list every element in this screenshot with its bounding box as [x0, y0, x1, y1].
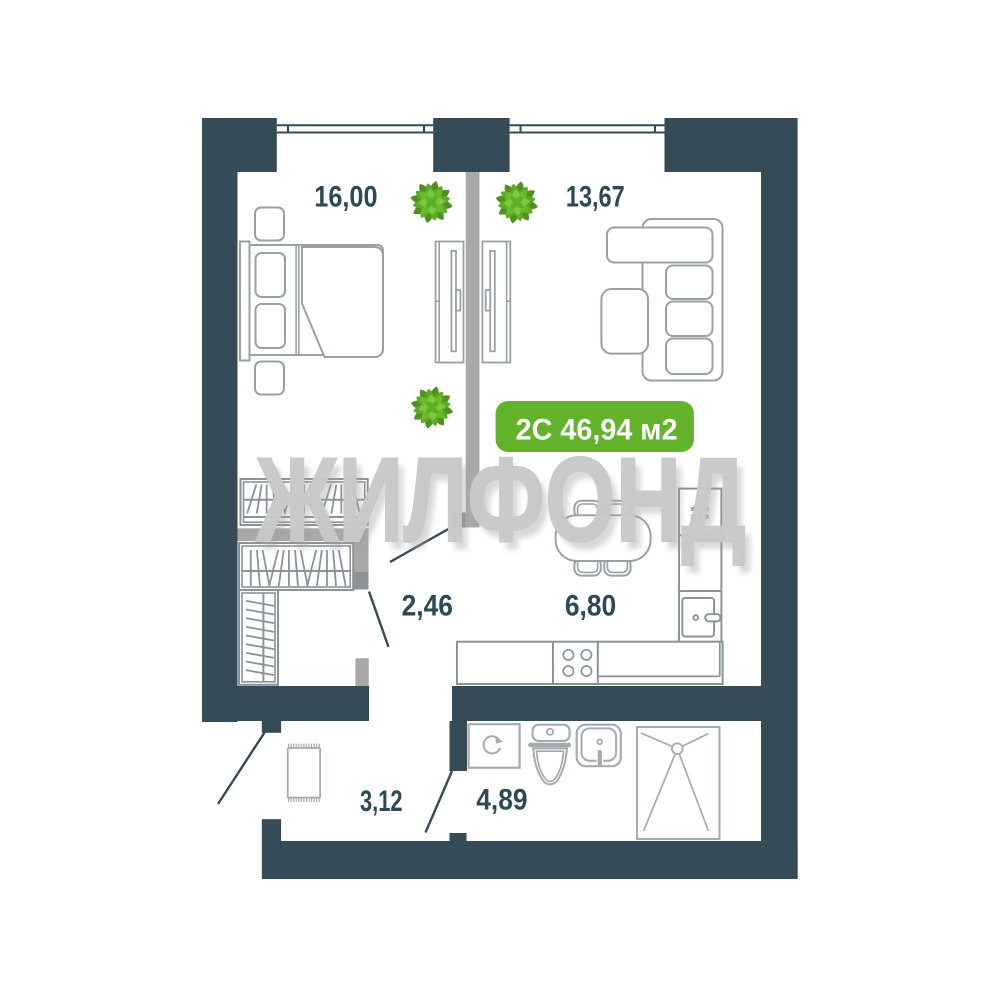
svg-text:6,80: 6,80	[565, 591, 616, 623]
svg-text:ЖИЛФОНД: ЖИЛФОНД	[255, 433, 746, 567]
svg-text:3,12: 3,12	[360, 786, 403, 818]
svg-text:4,89: 4,89	[476, 785, 527, 817]
svg-text:2,46: 2,46	[402, 591, 453, 623]
svg-text:13,67: 13,67	[566, 181, 625, 213]
svg-text:16,00: 16,00	[314, 181, 377, 213]
